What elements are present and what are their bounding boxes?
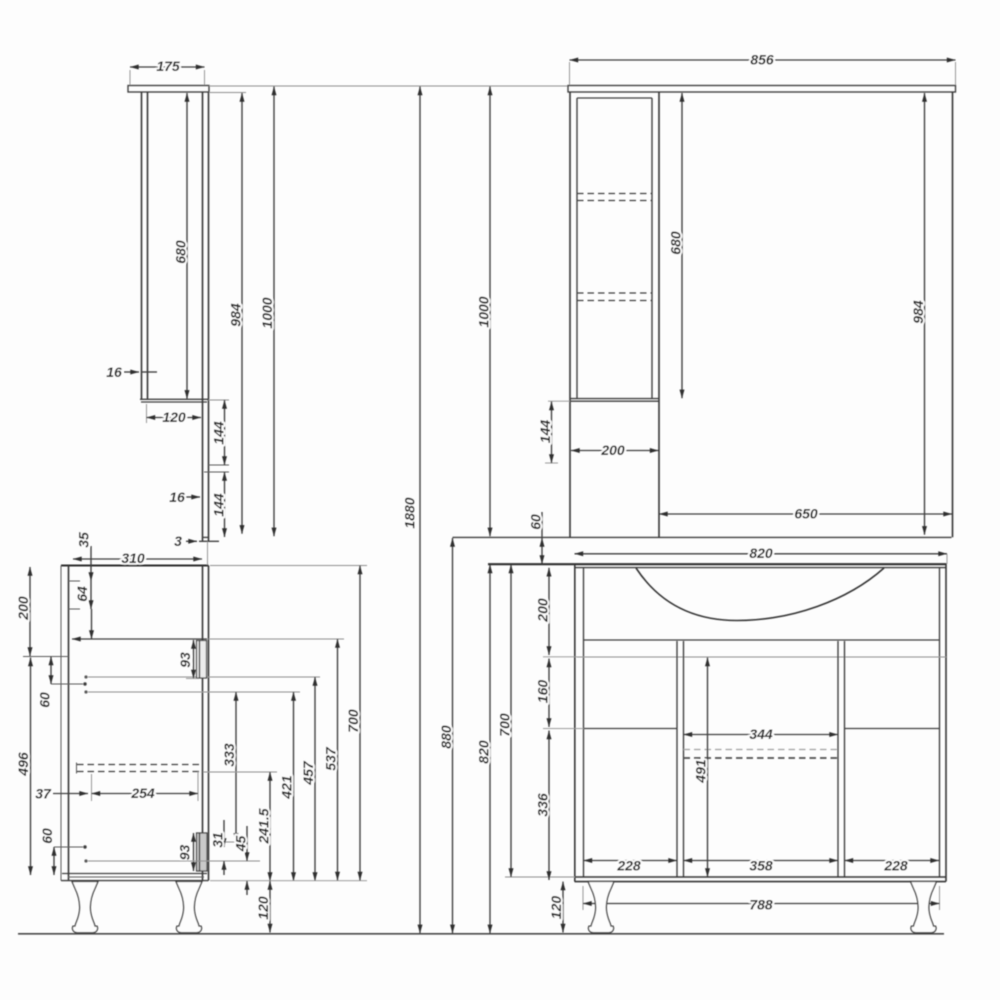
svg-text:93: 93 bbox=[177, 845, 193, 861]
svg-text:16: 16 bbox=[106, 364, 122, 380]
svg-text:60: 60 bbox=[528, 514, 544, 530]
svg-text:241.5: 241.5 bbox=[256, 808, 272, 844]
svg-text:160: 160 bbox=[535, 680, 551, 704]
svg-text:650: 650 bbox=[794, 506, 818, 522]
svg-text:310: 310 bbox=[121, 550, 145, 566]
svg-text:144: 144 bbox=[211, 421, 227, 445]
svg-text:984: 984 bbox=[228, 303, 244, 327]
svg-text:421: 421 bbox=[279, 775, 295, 800]
svg-text:788: 788 bbox=[749, 897, 773, 913]
svg-text:344: 344 bbox=[749, 726, 773, 742]
svg-text:700: 700 bbox=[345, 709, 361, 733]
svg-text:228: 228 bbox=[883, 858, 908, 874]
svg-text:60: 60 bbox=[37, 692, 53, 708]
svg-text:60: 60 bbox=[39, 828, 55, 844]
svg-text:254: 254 bbox=[130, 785, 155, 801]
svg-text:1880: 1880 bbox=[402, 497, 418, 528]
svg-text:537: 537 bbox=[323, 746, 339, 771]
svg-text:358: 358 bbox=[749, 858, 773, 874]
svg-text:1000: 1000 bbox=[259, 297, 275, 328]
svg-text:175: 175 bbox=[156, 58, 180, 74]
svg-text:200: 200 bbox=[535, 598, 551, 623]
svg-text:680: 680 bbox=[668, 231, 684, 255]
svg-text:336: 336 bbox=[535, 793, 551, 817]
svg-text:3: 3 bbox=[174, 533, 182, 549]
svg-text:120: 120 bbox=[255, 896, 271, 920]
svg-text:820: 820 bbox=[749, 545, 773, 561]
svg-text:200: 200 bbox=[15, 596, 31, 621]
svg-text:144: 144 bbox=[537, 420, 553, 444]
svg-text:1000: 1000 bbox=[476, 296, 492, 327]
svg-text:37: 37 bbox=[35, 786, 52, 802]
svg-text:45: 45 bbox=[233, 836, 249, 853]
svg-text:120: 120 bbox=[548, 896, 564, 920]
svg-text:333: 333 bbox=[221, 743, 237, 767]
svg-text:35: 35 bbox=[76, 532, 92, 548]
svg-text:491: 491 bbox=[693, 759, 709, 784]
svg-text:457: 457 bbox=[300, 760, 316, 786]
svg-text:31: 31 bbox=[210, 832, 226, 848]
svg-text:856: 856 bbox=[750, 52, 774, 68]
svg-text:984: 984 bbox=[910, 300, 926, 324]
svg-text:200: 200 bbox=[600, 442, 625, 458]
svg-text:880: 880 bbox=[438, 725, 454, 749]
svg-text:820: 820 bbox=[476, 740, 492, 764]
svg-text:680: 680 bbox=[173, 240, 189, 264]
svg-text:93: 93 bbox=[177, 652, 193, 668]
svg-text:16: 16 bbox=[169, 489, 185, 505]
svg-text:700: 700 bbox=[497, 713, 513, 737]
svg-text:144: 144 bbox=[211, 493, 227, 517]
svg-text:496: 496 bbox=[15, 752, 31, 777]
svg-text:64: 64 bbox=[74, 586, 90, 602]
svg-text:120: 120 bbox=[162, 409, 186, 425]
svg-text:228: 228 bbox=[616, 858, 641, 874]
